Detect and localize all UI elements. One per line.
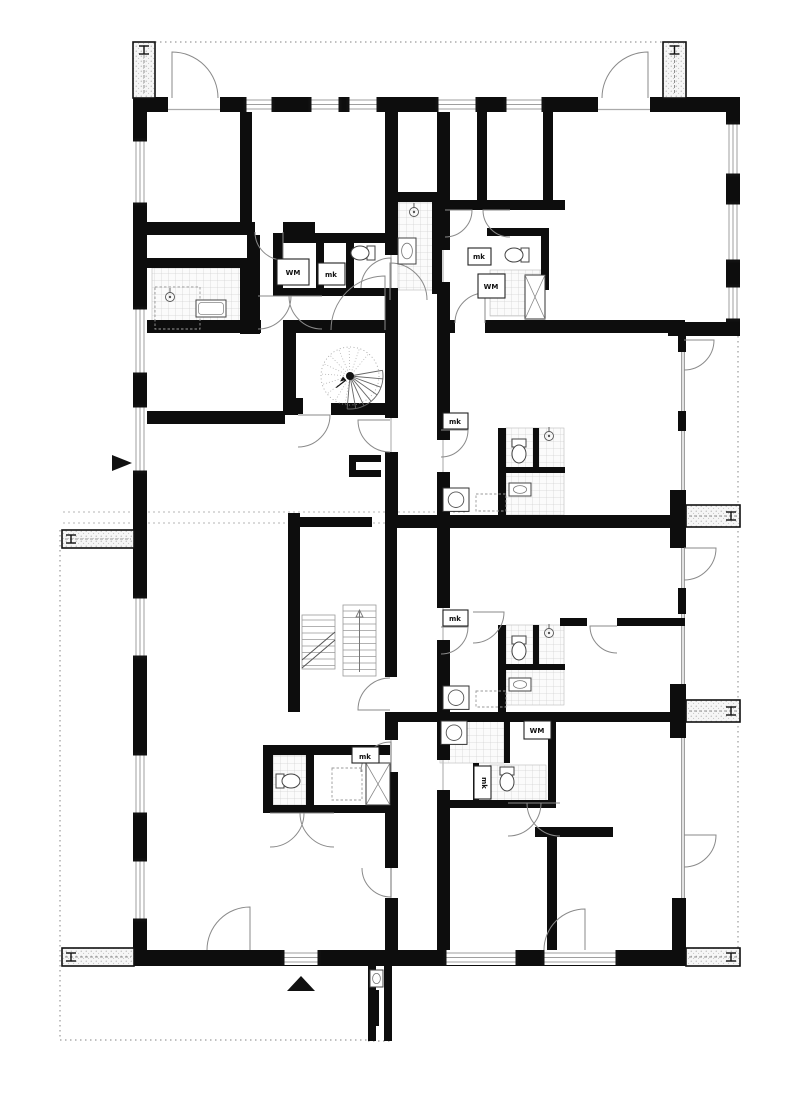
- wall: [498, 625, 506, 712]
- wall: [283, 320, 392, 333]
- label-text: mk: [449, 615, 461, 623]
- wall: [331, 403, 392, 415]
- room-label: mk: [443, 610, 468, 626]
- wall: [535, 827, 613, 837]
- wall: [147, 258, 245, 268]
- toilet: [276, 774, 300, 788]
- toilet: [351, 246, 375, 260]
- door-swing: [684, 835, 716, 867]
- window-jamb: [726, 319, 740, 322]
- room-label: mk: [352, 747, 379, 763]
- wall: [533, 428, 539, 472]
- wall: [498, 428, 506, 518]
- window-jamb: [133, 139, 147, 142]
- wall: [133, 222, 255, 235]
- label-text: WM: [530, 727, 545, 735]
- appliance-dashed-outline: [332, 768, 362, 800]
- door-swing: [684, 340, 714, 370]
- door-swing: [684, 548, 716, 580]
- label-text: WM: [484, 283, 499, 291]
- spiral-tread-dotted: [339, 349, 350, 376]
- toilet-bowl: [500, 773, 514, 791]
- toilet: [512, 636, 526, 660]
- wall: [385, 898, 398, 950]
- window-jamb: [726, 260, 740, 263]
- window-jamb: [272, 97, 275, 112]
- toilet-bowl: [512, 642, 526, 660]
- door-swing: [207, 907, 250, 950]
- bathtub: [196, 300, 226, 317]
- wall: [678, 336, 686, 352]
- spiral-newel: [346, 372, 354, 380]
- wall: [385, 515, 685, 528]
- wall: [385, 288, 398, 418]
- reference-lines-layer: [60, 42, 738, 1041]
- washing-machine: [443, 686, 469, 709]
- window-jamb: [726, 122, 740, 125]
- room-label: mk: [468, 248, 491, 265]
- door-swing: [300, 813, 334, 847]
- wall: [437, 320, 455, 333]
- window-jamb: [244, 97, 247, 112]
- window-jamb: [133, 919, 147, 922]
- window-jamb: [726, 202, 740, 205]
- room-label: mk: [443, 413, 468, 429]
- washbasin: [509, 678, 531, 691]
- wall: [485, 320, 685, 333]
- window-jamb: [133, 203, 147, 206]
- window-jamb: [133, 307, 147, 310]
- entrance-arrow: [287, 976, 315, 991]
- label-text: mk: [473, 253, 485, 261]
- wall: [543, 112, 553, 204]
- window-jamb: [318, 950, 321, 965]
- window-jamb: [309, 97, 312, 112]
- shaft-x-brace: [525, 275, 545, 319]
- window-jamb: [504, 97, 507, 112]
- toilet-bowl: [505, 248, 523, 262]
- label-text: mk: [325, 271, 337, 279]
- room-label: mk: [318, 263, 345, 285]
- window-jamb: [133, 373, 147, 376]
- wall: [547, 837, 557, 952]
- wall: [385, 452, 398, 515]
- window-jamb: [133, 813, 147, 816]
- wall: [617, 618, 685, 626]
- door-swing: [172, 52, 218, 98]
- window-jamb: [516, 950, 519, 965]
- spiral-tread-dotted: [350, 349, 359, 376]
- window-jamb: [616, 950, 619, 965]
- label-text: WM: [286, 269, 301, 277]
- spiral-tread-dotted: [350, 354, 369, 376]
- wall: [533, 625, 539, 669]
- spiral-tread-dotted: [324, 364, 350, 376]
- window-jamb: [476, 97, 479, 112]
- wall: [670, 684, 686, 738]
- label-text: mk: [449, 418, 461, 426]
- spiral-tread-dotted: [349, 347, 350, 376]
- door-swing: [358, 678, 390, 710]
- spiral-tread-dotted: [321, 374, 350, 376]
- stair-flight-outline: [302, 615, 335, 669]
- washbasin: [509, 483, 531, 496]
- floor-plan: WMmkmkWMmkmkmkWMmk: [0, 0, 800, 1099]
- wall: [371, 990, 379, 1026]
- washing-machine: [441, 721, 467, 744]
- wall: [288, 513, 300, 712]
- washbasin: [398, 238, 416, 264]
- door-swing: [270, 813, 304, 847]
- washbasin: [370, 970, 383, 987]
- wall: [263, 745, 273, 813]
- balcony-dividers-layer: [62, 42, 740, 966]
- room-label: WM: [478, 274, 505, 298]
- toilet-bowl: [351, 246, 369, 260]
- stair-break-line: [302, 640, 335, 668]
- window-jamb: [133, 859, 147, 862]
- door-swing: [362, 868, 391, 897]
- wall: [678, 411, 686, 431]
- door-swing: [298, 415, 330, 447]
- wall: [487, 228, 549, 236]
- door-swing: [590, 626, 617, 653]
- shaft-x-brace: [366, 763, 390, 805]
- wall: [441, 800, 556, 808]
- window-jamb: [542, 950, 545, 965]
- window-jamb: [444, 950, 447, 965]
- wall: [147, 411, 285, 424]
- wall: [306, 755, 314, 805]
- spiral-tread-dotted: [327, 376, 350, 394]
- walls-layer: [133, 97, 740, 1041]
- window-jamb: [542, 97, 545, 112]
- wall: [505, 664, 565, 670]
- window-jamb: [347, 97, 350, 112]
- toilet-bowl: [512, 445, 526, 463]
- wall: [273, 233, 387, 243]
- window-jamb: [133, 596, 147, 599]
- washing-machine: [443, 488, 469, 511]
- door-swing: [361, 258, 391, 288]
- wall: [384, 965, 392, 1041]
- straight-stair: [302, 605, 376, 676]
- wall: [273, 288, 387, 296]
- section-marker: [112, 455, 132, 471]
- window-jamb: [339, 97, 342, 112]
- floor-plan-canvas: WMmkmkWMmkmkmkWMmk: [0, 0, 800, 1099]
- window-jamb: [436, 97, 439, 112]
- window-jamb: [133, 471, 147, 474]
- wall: [437, 790, 450, 950]
- wall: [432, 202, 442, 294]
- wall: [263, 805, 390, 813]
- wall: [505, 467, 565, 473]
- tiled-floor: [490, 765, 546, 801]
- room-label: WM: [277, 259, 309, 285]
- wall: [300, 517, 372, 527]
- toilet: [505, 248, 529, 262]
- wall: [672, 898, 686, 966]
- window-jamb: [377, 97, 380, 112]
- room-label: mk: [474, 766, 491, 799]
- wall: [385, 513, 397, 677]
- label-text: mk: [359, 753, 371, 761]
- room-label: WM: [524, 721, 551, 739]
- door-swing: [602, 52, 648, 98]
- toilet-bowl: [282, 774, 300, 788]
- window-jamb: [282, 950, 285, 965]
- window-jamb: [133, 656, 147, 659]
- wall: [349, 470, 381, 477]
- label-text: mk: [480, 777, 488, 789]
- door-swing: [358, 420, 390, 452]
- window-jamb: [133, 405, 147, 408]
- wall: [678, 588, 686, 614]
- spiral-stair: [321, 347, 383, 409]
- wall: [240, 112, 252, 224]
- window-jamb: [726, 285, 740, 288]
- window-jamb: [726, 174, 740, 177]
- wall: [283, 398, 303, 414]
- toilet: [500, 767, 514, 791]
- wall: [560, 618, 587, 626]
- spiral-tread-dotted: [330, 355, 350, 376]
- window-jamb: [133, 753, 147, 756]
- spiral-tread: [350, 370, 382, 376]
- wall: [240, 258, 253, 334]
- wall: [477, 112, 487, 204]
- toilet: [512, 439, 526, 463]
- wall: [437, 200, 565, 210]
- wall: [504, 717, 510, 763]
